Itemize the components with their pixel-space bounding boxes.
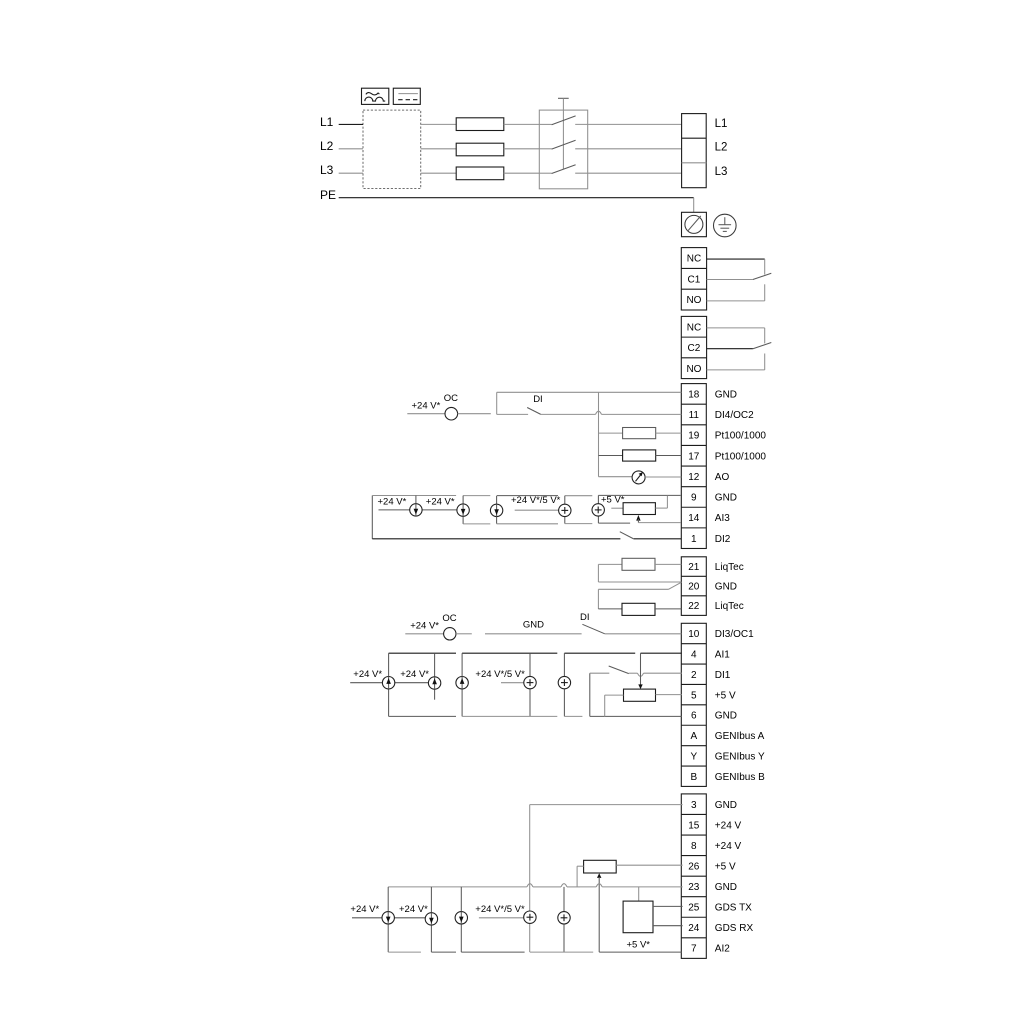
svg-text:DI2: DI2: [715, 534, 731, 545]
svg-text:GDS RX: GDS RX: [715, 923, 754, 934]
svg-text:+24 V*/5 V*: +24 V*/5 V*: [511, 495, 561, 506]
svg-text:+24 V*: +24 V*: [350, 904, 379, 915]
svg-text:OC: OC: [442, 613, 456, 624]
svg-text:22: 22: [688, 601, 700, 612]
svg-text:C1: C1: [688, 274, 701, 285]
svg-text:DI4/OC2: DI4/OC2: [715, 410, 754, 421]
svg-text:GENIbus Y: GENIbus Y: [715, 751, 765, 762]
svg-text:A: A: [690, 731, 697, 742]
svg-text:25: 25: [688, 903, 700, 914]
svg-text:8: 8: [691, 841, 697, 852]
svg-text:Pt100/1000: Pt100/1000: [715, 431, 767, 442]
svg-text:L1: L1: [320, 115, 334, 129]
svg-text:C2: C2: [688, 343, 701, 354]
svg-text:4: 4: [691, 649, 697, 660]
svg-text:10: 10: [688, 629, 700, 640]
svg-text:+24 V*: +24 V*: [353, 669, 382, 680]
svg-text:+24 V*/5 V*: +24 V*/5 V*: [475, 669, 525, 680]
svg-text:26: 26: [688, 861, 700, 872]
svg-text:12: 12: [688, 472, 700, 483]
svg-text:DI1: DI1: [715, 670, 731, 681]
svg-text:23: 23: [688, 882, 700, 893]
svg-text:+5 V*: +5 V*: [601, 494, 625, 505]
svg-text:GND: GND: [715, 800, 737, 811]
svg-text:L2: L2: [715, 141, 728, 153]
svg-text:2: 2: [691, 670, 697, 681]
svg-text:15: 15: [688, 820, 700, 831]
svg-text:7: 7: [691, 944, 697, 955]
svg-text:+24 V*: +24 V*: [399, 904, 428, 915]
svg-text:NC: NC: [687, 322, 701, 333]
svg-text:AO: AO: [715, 472, 730, 483]
svg-text:GENIbus B: GENIbus B: [715, 772, 765, 783]
svg-text:+24 V: +24 V: [715, 820, 742, 831]
svg-text:GND: GND: [715, 882, 737, 893]
svg-text:L1: L1: [715, 118, 728, 130]
svg-text:24: 24: [688, 923, 700, 934]
svg-text:NO: NO: [686, 295, 701, 306]
svg-text:+24 V*/5 V*: +24 V*/5 V*: [475, 904, 525, 915]
svg-text:L2: L2: [320, 139, 334, 153]
svg-text:L3: L3: [715, 166, 728, 178]
svg-text:3: 3: [691, 800, 697, 811]
svg-text:14: 14: [688, 513, 700, 524]
svg-text:1: 1: [691, 534, 697, 545]
svg-text:DI: DI: [580, 612, 590, 623]
svg-text:NO: NO: [686, 364, 701, 375]
svg-text:GND: GND: [715, 493, 737, 504]
svg-text:+24 V*: +24 V*: [400, 669, 429, 680]
svg-text:11: 11: [689, 410, 700, 421]
svg-text:L3: L3: [320, 163, 334, 177]
svg-text:LiqTec: LiqTec: [715, 562, 744, 573]
svg-text:+5 V: +5 V: [715, 861, 736, 872]
svg-text:9: 9: [691, 493, 697, 504]
svg-text:PE: PE: [320, 188, 336, 202]
svg-text:+5 V*: +5 V*: [627, 940, 651, 951]
svg-text:21: 21: [688, 562, 700, 573]
svg-text:B: B: [690, 772, 697, 783]
svg-text:AI1: AI1: [715, 649, 730, 660]
svg-text:17: 17: [688, 451, 700, 462]
svg-text:+24 V*: +24 V*: [378, 496, 407, 507]
svg-text:LiqTec: LiqTec: [715, 601, 744, 612]
svg-text:Pt100/1000: Pt100/1000: [715, 451, 767, 462]
svg-text:DI: DI: [533, 394, 543, 405]
svg-text:AI3: AI3: [715, 513, 730, 524]
svg-text:GND: GND: [715, 711, 737, 722]
svg-text:5: 5: [691, 690, 697, 701]
svg-text:GDS TX: GDS TX: [715, 903, 752, 914]
svg-text:19: 19: [688, 431, 700, 442]
svg-text:+24 V*: +24 V*: [410, 620, 439, 631]
svg-text:AI2: AI2: [715, 944, 730, 955]
svg-text:18: 18: [688, 390, 700, 401]
svg-text:+24 V: +24 V: [715, 841, 742, 852]
svg-text:Y: Y: [690, 751, 697, 762]
svg-text:+24 V*: +24 V*: [426, 496, 455, 507]
svg-text:GND: GND: [523, 620, 544, 631]
svg-text:NC: NC: [687, 254, 701, 265]
svg-text:GND: GND: [715, 582, 737, 593]
svg-text:6: 6: [691, 711, 697, 722]
svg-text:DI3/OC1: DI3/OC1: [715, 629, 754, 640]
svg-text:+24 V*: +24 V*: [412, 400, 441, 411]
svg-text:GND: GND: [715, 390, 737, 401]
svg-text:GENIbus A: GENIbus A: [715, 731, 765, 742]
svg-text:OC: OC: [444, 393, 458, 404]
svg-text:+5 V: +5 V: [715, 690, 736, 701]
svg-text:20: 20: [688, 582, 700, 593]
